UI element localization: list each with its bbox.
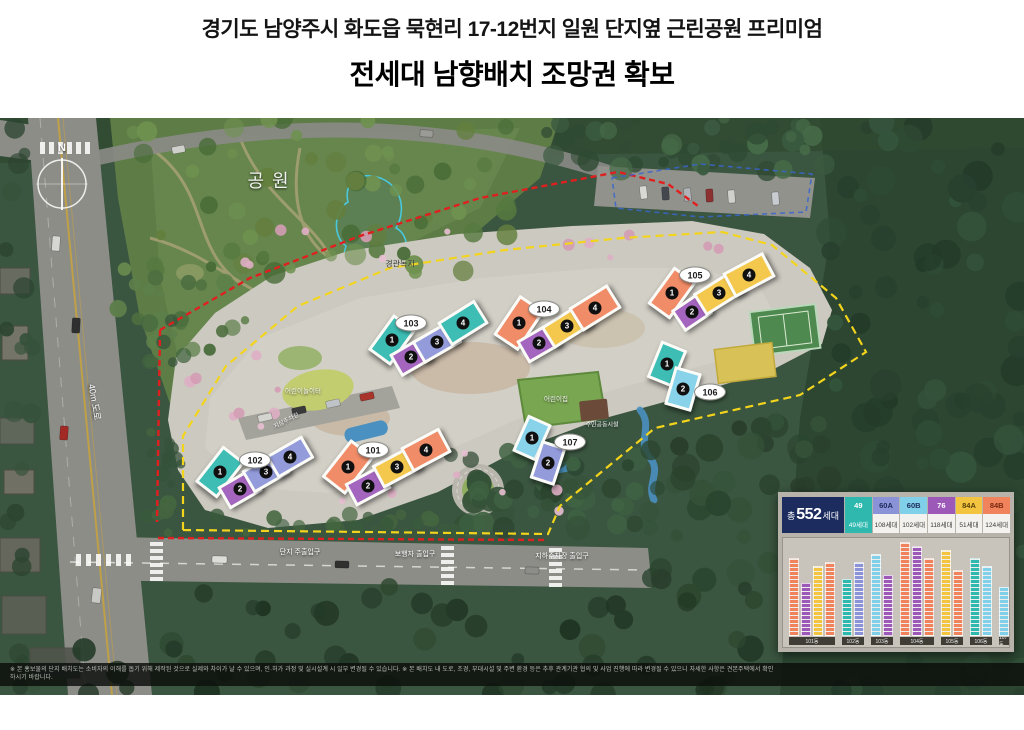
- unit-number-badge: 4: [457, 317, 470, 330]
- unit-number-badge: 4: [420, 444, 433, 457]
- page-title: 경기도 남양주시 화도읍 묵현리 17-12번지 일원 단지옆 근린공원 프리미…: [0, 0, 1024, 43]
- unit-number-badge: 2: [542, 457, 555, 470]
- chart-column-84B: [924, 558, 934, 636]
- chart-dong-label: 104동: [900, 637, 934, 645]
- legend-type-label: 84A: [956, 497, 983, 514]
- daycare-label: 어린이집: [544, 393, 568, 403]
- chart-dong-label: 101동: [789, 637, 835, 645]
- legend-type-60B: 60B102세대: [900, 497, 927, 533]
- legend-type-49: 4949세대: [845, 497, 872, 533]
- legend-type-label: 60A: [873, 497, 900, 514]
- header: 경기도 남양주시 화도읍 묵현리 17-12번지 일원 단지옆 근린공원 프리미…: [0, 0, 1024, 118]
- unit-number-badge: 2: [533, 337, 546, 350]
- building-number-107: 107: [554, 434, 586, 451]
- community-facility-label: 주민공동시설: [585, 420, 618, 429]
- chart-column-76: [912, 546, 922, 636]
- unit-number-badge: 3: [713, 287, 726, 300]
- map-disclaimer: ※ 본 홍보물의 단지 배치도는 소비자의 이해를 돕기 위해 제작된 것으로 …: [0, 663, 1024, 686]
- legend-total-units: 총552세대: [782, 497, 844, 533]
- chart-dong-label: 105동: [941, 637, 963, 645]
- legend-type-label: 49: [845, 497, 872, 514]
- compass-north-label: N: [58, 142, 66, 154]
- unit-number-badge: 1: [513, 317, 526, 330]
- unit-number-badge: 3: [431, 336, 444, 349]
- legend-type-count: 51세대: [956, 514, 983, 533]
- greenbelt-label: 경관녹지: [385, 259, 414, 270]
- page-subtitle: 전세대 남향배치 조망권 확보: [0, 53, 1024, 93]
- playground-label: 어린이놀이터: [285, 385, 321, 395]
- chart-column-60B: [999, 587, 1009, 636]
- building-number-103: 103: [395, 315, 427, 332]
- chart-column-76: [883, 575, 893, 637]
- building-number-105: 105: [679, 267, 711, 284]
- unit-number-badge: 1: [342, 461, 355, 474]
- legend-type-label: 84B: [983, 497, 1010, 514]
- building-number-102: 102: [239, 452, 271, 469]
- unit-number-badge: 4: [284, 451, 297, 464]
- unit-number-badge: 1: [214, 466, 227, 479]
- legend-header: 총552세대 4949세대60A108세대60B102세대76118세대84A5…: [782, 497, 1010, 533]
- page: 경기도 남양주시 화도읍 묵현리 17-12번지 일원 단지옆 근린공원 프리미…: [0, 0, 1024, 730]
- legend-type-count: 118세대: [928, 514, 955, 533]
- legend-type-label: 76: [928, 497, 955, 514]
- legend-type-76: 76118세대: [928, 497, 955, 533]
- unit-number-badge: 2: [362, 480, 375, 493]
- unit-number-badge: 1: [526, 432, 539, 445]
- chart-column-49: [970, 558, 980, 636]
- unit-number-badge: 3: [561, 320, 574, 333]
- legend-total-value: 552: [796, 506, 821, 524]
- legend-total-suffix: 세대: [822, 509, 839, 522]
- unit-number-badge: 2: [234, 483, 247, 496]
- building-number-101: 101: [357, 442, 389, 459]
- unit-number-badge: 4: [743, 269, 756, 282]
- unit-number-badge: 3: [391, 461, 404, 474]
- site-map: N 공원 경관녹지 40m 도로 어린이놀이터 어린이집 주민공동시설 지상주차…: [0, 118, 1024, 695]
- chart-column-84A: [813, 566, 823, 636]
- chart-dong-label: 107동: [999, 637, 1009, 645]
- legend-type-count: 124세대: [983, 514, 1010, 533]
- chart-column-60B: [982, 566, 992, 636]
- legend-total-prefix: 총: [787, 509, 795, 522]
- chart-dong-label: 106동: [970, 637, 992, 645]
- chart-dong-label: 102동: [842, 637, 864, 645]
- chart-column-49: [842, 579, 852, 636]
- entrance-label: 단지 주출입구: [280, 547, 321, 557]
- chart-dong-label: 103동: [871, 637, 893, 645]
- chart-column-76: [801, 583, 811, 636]
- entrance-label: 지하주차장 출입구: [535, 551, 588, 561]
- unit-number-badge: 2: [677, 383, 690, 396]
- unit-number-badge: 1: [661, 358, 674, 371]
- chart-column-84B: [953, 570, 963, 636]
- unit-number-badge: 2: [405, 351, 418, 364]
- chart-column-60A: [854, 562, 864, 636]
- unit-number-badge: 2: [686, 306, 699, 319]
- chart-column-84A: [941, 550, 951, 636]
- legend-type-count: 102세대: [900, 514, 927, 533]
- chart-column-84B: [789, 558, 799, 636]
- chart-column-84B: [900, 542, 910, 636]
- chart-column-84B: [825, 562, 835, 636]
- legend-type-label: 60B: [900, 497, 927, 514]
- legend-type-84B: 84B124세대: [983, 497, 1010, 533]
- unit-legend-panel: 총552세대 4949세대60A108세대60B102세대76118세대84A5…: [778, 492, 1014, 652]
- chart-column-60B: [871, 554, 881, 636]
- unit-number-badge: 1: [666, 287, 679, 300]
- park-label: 공원: [247, 167, 296, 193]
- building-number-104: 104: [528, 301, 560, 318]
- legend-type-count: 108세대: [873, 514, 900, 533]
- unit-number-badge: 4: [589, 302, 602, 315]
- legend-stack-chart: 101동102동103동104동105동106동107동: [782, 537, 1010, 648]
- unit-number-badge: 1: [386, 334, 399, 347]
- building-number-106: 106: [694, 384, 726, 401]
- entrance-label: 보행자 출입구: [395, 549, 436, 559]
- legend-type-84A: 84A51세대: [956, 497, 983, 533]
- legend-type-60A: 60A108세대: [873, 497, 900, 533]
- legend-type-count: 49세대: [845, 514, 872, 533]
